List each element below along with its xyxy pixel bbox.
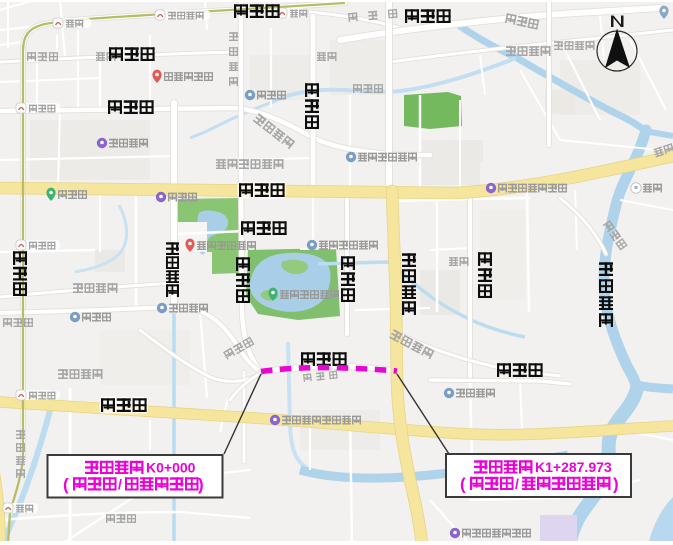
svg-text:/: /	[118, 476, 122, 492]
svg-text:): )	[613, 475, 619, 494]
svg-text:): )	[198, 475, 204, 494]
svg-text:K0+000: K0+000	[146, 460, 196, 476]
svg-text:/: /	[515, 476, 519, 492]
svg-text:(: (	[63, 475, 69, 494]
svg-text:K1+287.973: K1+287.973	[535, 459, 612, 475]
svg-text:(: (	[460, 475, 466, 494]
